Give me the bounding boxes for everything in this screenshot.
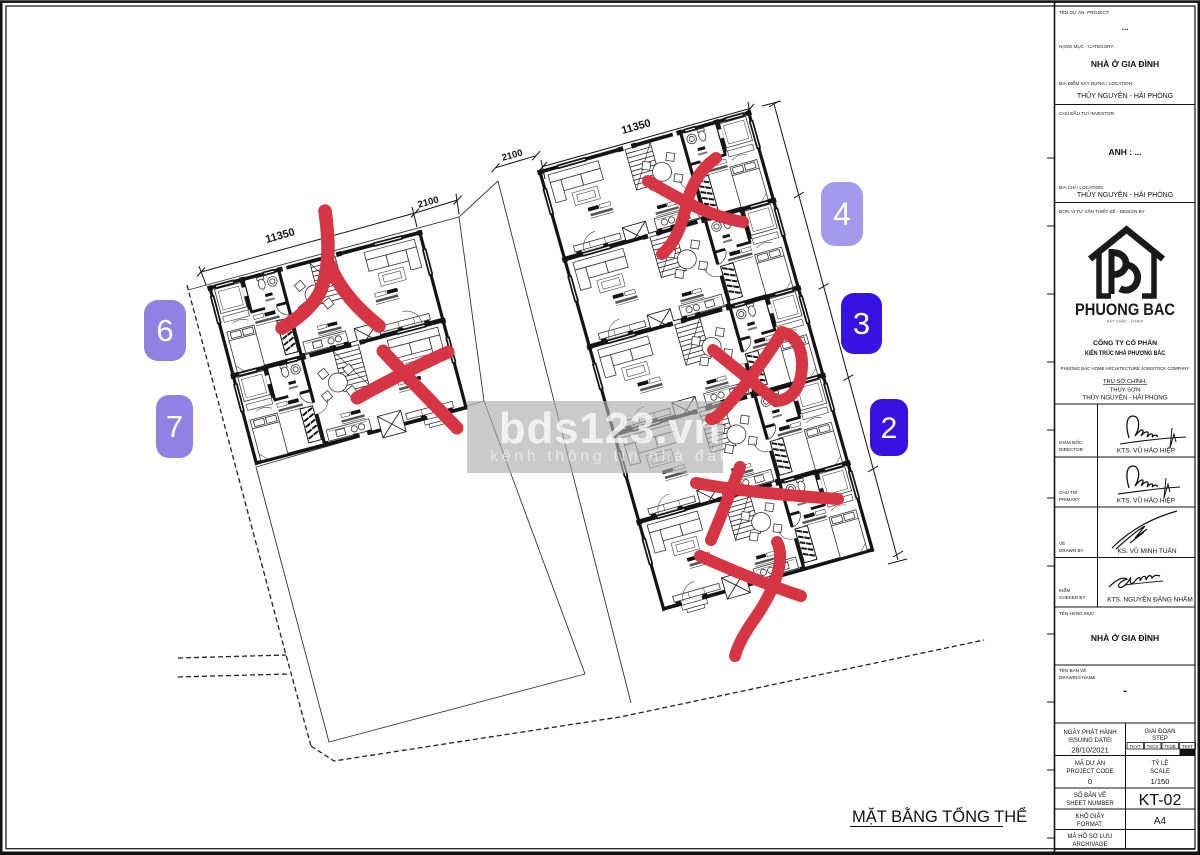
svg-text:HẠNG MỤC - CATEGORY:: HẠNG MỤC - CATEGORY: [1059,44,1114,49]
svg-text:NHÀ Ở GIA ĐÌNH: NHÀ Ở GIA ĐÌNH [1091,58,1159,69]
svg-text:6: 6 [156,313,173,348]
svg-text:TÊN HẠNG MỤC: TÊN HẠNG MỤC [1059,609,1095,616]
svg-text:PHUONG BAC HOME ARCHITECTURE J: PHUONG BAC HOME ARCHITECTURE JOINSTOCK C… [1061,366,1190,371]
svg-text:PRIMARY: PRIMARY [1059,497,1080,502]
svg-text:SỐ BẢN VẼ: SỐ BẢN VẼ [1074,792,1106,799]
svg-text:SCALE: SCALE [1150,769,1170,775]
svg-text:KTS. VŨ HẢO HIỆP: KTS. VŨ HẢO HIỆP [1117,496,1175,505]
svg-text:11350: 11350 [620,117,652,137]
svg-text:THỦY SƠN: THỦY SƠN [1110,387,1140,394]
svg-text:-: - [1123,685,1127,697]
svg-text:kênh thông tin nhà đất: kênh thông tin nhà đất [490,448,728,465]
svg-text:TRỤ SỞ CHÍNH:: TRỤ SỞ CHÍNH: [1103,378,1147,385]
svg-text:SHEET NUMBER: SHEET NUMBER [1066,801,1114,807]
svg-text:MÃ HỒ SƠ LƯU: MÃ HỒ SƠ LƯU [1068,833,1113,840]
svg-text:2: 2 [881,412,898,445]
svg-text:11350: 11350 [264,226,296,245]
svg-text:7: 7 [166,409,183,444]
svg-text:GIAI ĐOẠN: GIAI ĐOẠN [1144,729,1175,735]
svg-text:TỶ LỆ: TỶ LỆ [1152,759,1169,767]
svg-text:1/150: 1/150 [1151,777,1170,786]
svg-text:KIẾN TRÚC NHÀ PHƯƠNG BẮC: KIẾN TRÚC NHÀ PHƯƠNG BẮC [1085,347,1165,357]
svg-text:ISSUING DATEI: ISSUING DATEI [1068,738,1112,744]
svg-text:TKCS: TKCS [1147,744,1159,749]
svg-text:GIÁM ĐỐC: GIÁM ĐỐC [1059,439,1083,445]
svg-text:KT-02: KT-02 [1139,792,1182,809]
svg-text:KTS. VŨ HẢO HIỆP: KTS. VŨ HẢO HIỆP [1117,446,1175,455]
svg-text:CHỦ TRÌ: CHỦ TRÌ [1059,489,1078,495]
svg-text:ANH : ...: ANH : ... [1108,147,1141,157]
svg-text:PHUONG BAC: PHUONG BAC [1075,301,1175,319]
svg-text:NHÀ Ở GIA ĐÌNH: NHÀ Ở GIA ĐÌNH [1091,632,1159,643]
svg-text:A4: A4 [1154,816,1167,827]
svg-text:ĐIA CHỈ / LOCATION:: ĐIA CHỈ / LOCATION: [1059,184,1104,190]
svg-text:28/10/2021: 28/10/2021 [1071,746,1109,755]
svg-text:PROJECT CODE: PROJECT CODE [1067,769,1114,775]
svg-text:TÊN BẢN VẼ: TÊN BẢN VẼ [1059,666,1086,673]
svg-text:4: 4 [833,196,851,232]
svg-text:VẼ: VẼ [1059,540,1065,546]
svg-text:KS. VŨ MINH TUẤN: KS. VŨ MINH TUẤN [1117,545,1176,555]
svg-text:MÃ DỰ ÁN: MÃ DỰ ÁN [1075,760,1105,767]
svg-text:3: 3 [853,306,870,341]
svg-text:FORMAT:: FORMAT: [1077,822,1103,828]
svg-text:ARCHIVAGE: ARCHIVAGE [1073,842,1108,848]
svg-text:DRAWING NAME: DRAWING NAME [1059,675,1096,680]
svg-text:TKKT: TKKT [1182,744,1194,749]
svg-text:XÂY CHẮC - Ở ĐẸP: XÂY CHẮC - Ở ĐẸP [1107,319,1144,324]
svg-text:THỦY NGUYÊN - HẢI PHÒNG: THỦY NGUYÊN - HẢI PHÒNG [1082,394,1167,402]
svg-text:KTS. NGUYỄN ĐĂNG NHÂM: KTS. NGUYỄN ĐĂNG NHÂM [1107,595,1193,604]
svg-text:DRAWN BY: DRAWN BY [1059,548,1084,553]
svg-text:KIỂM: KIỂM [1059,587,1070,593]
svg-text:...: ... [1122,23,1129,32]
svg-text:ĐIA ĐIỂM XÂY DỰNG / LOCATION:: ĐIA ĐIỂM XÂY DỰNG / LOCATION: [1059,80,1133,86]
svg-text:TÊN DỰ ÁN- PROJECT:: TÊN DỰ ÁN- PROJECT: [1059,8,1109,15]
svg-text:CÔNG TY CỔ PHẦN: CÔNG TY CỔ PHẦN [1093,337,1157,347]
svg-text:bds123.vn: bds123.vn [499,404,721,453]
svg-text:THỦY NGUYÊN - HẢI PHÒNG: THỦY NGUYÊN - HẢI PHÒNG [1077,190,1173,199]
svg-text:STEP: STEP [1152,736,1168,742]
svg-text:CHỦ ĐẦU TƯ/ INVESTOR:: CHỦ ĐẦU TƯ/ INVESTOR: [1059,110,1115,116]
svg-text:ĐƠN VI TƯ VẤN THIẾT KẾ - DESIG: ĐƠN VI TƯ VẤN THIẾT KẾ - DESIGN BY [1059,208,1145,214]
svg-text:DIRECTOR: DIRECTOR [1059,447,1084,452]
svg-text:KHỔ GIẤY: KHỔ GIẤY [1075,813,1104,820]
svg-text:2100: 2100 [501,147,524,163]
svg-text:THỦY NGUYÊN - HẢI PHÒNG: THỦY NGUYÊN - HẢI PHÒNG [1077,91,1173,100]
svg-text:CHEKED BY: CHEKED BY [1059,595,1086,600]
svg-text:2100: 2100 [417,194,440,210]
svg-text:0: 0 [1088,777,1092,786]
svg-text:TKSB: TKSB [1164,744,1176,749]
svg-text:MẶT BẰNG TỔNG THỂ: MẶT BẰNG TỔNG THỂ [852,807,1027,826]
svg-text:TKYT: TKYT [1129,744,1141,749]
svg-text:NGÀY PHÁT HÀNH: NGÀY PHÁT HÀNH [1063,729,1116,736]
